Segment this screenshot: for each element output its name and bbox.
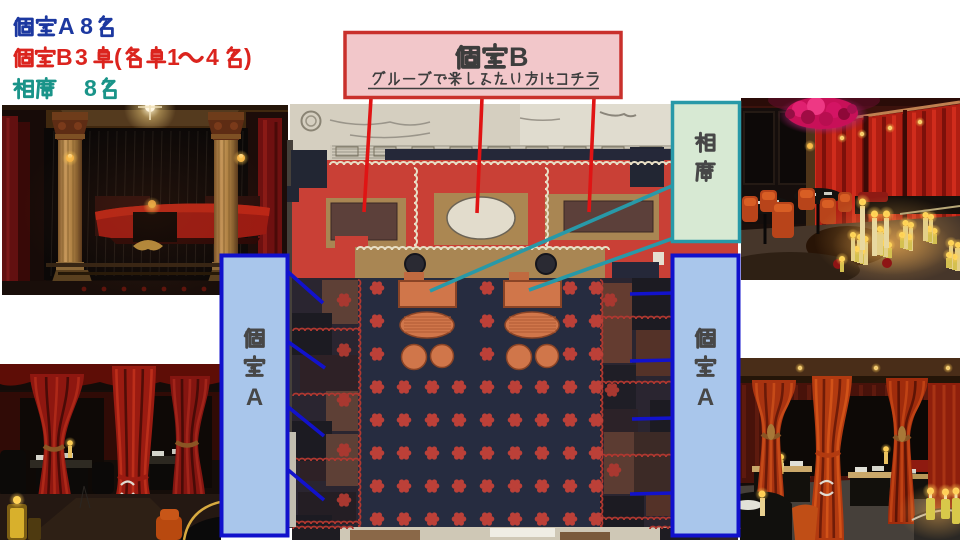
svg-text:4: 4 [206, 44, 219, 70]
svg-text:): ) [244, 44, 252, 70]
svg-text:8: 8 [84, 75, 97, 101]
svg-text:A: A [697, 384, 714, 411]
svg-text:B: B [56, 44, 73, 70]
svg-text:3: 3 [75, 44, 88, 70]
svg-text:B: B [509, 42, 529, 72]
svg-text:A: A [246, 384, 263, 411]
svg-text:(: ( [114, 44, 122, 70]
svg-text:1: 1 [167, 44, 180, 70]
svg-text:A 8: A 8 [58, 13, 93, 39]
